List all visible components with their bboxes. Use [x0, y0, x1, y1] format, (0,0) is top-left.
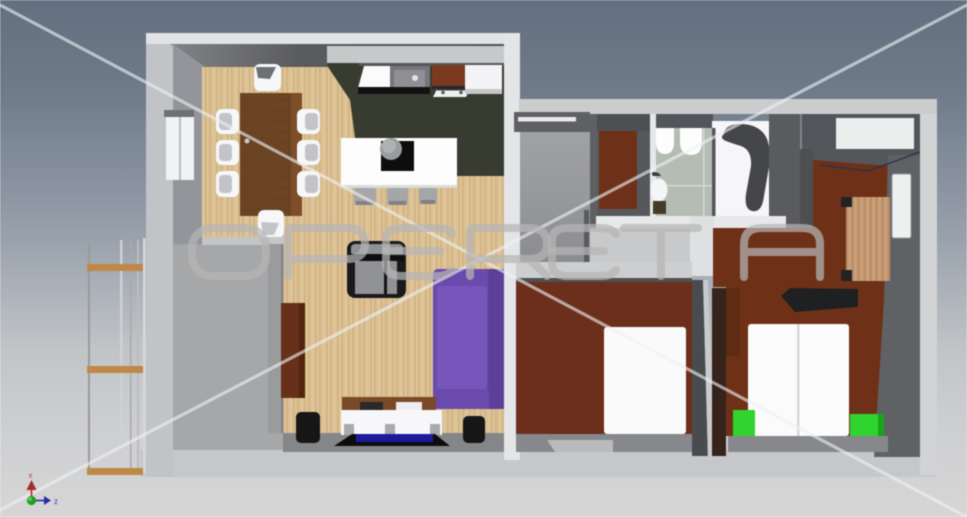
svg-text:x: x: [29, 471, 33, 480]
svg-text:z: z: [54, 497, 58, 506]
